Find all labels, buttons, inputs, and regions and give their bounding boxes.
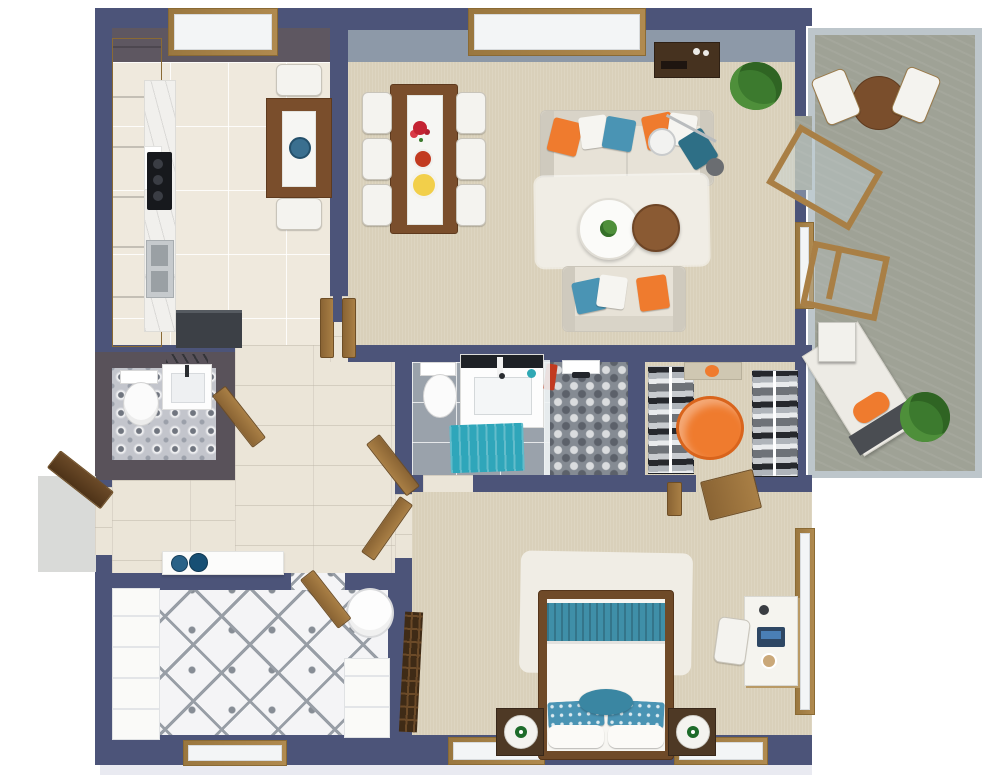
closet-door-jamb	[667, 482, 682, 516]
pillow-white-3	[596, 274, 628, 310]
cooktop	[147, 152, 172, 210]
blue-bowl-2	[189, 553, 208, 572]
media-console	[654, 42, 720, 78]
bed-frame	[538, 590, 674, 760]
yellow-plate	[410, 171, 438, 199]
double-door-right	[342, 298, 356, 358]
pillow-orange-3	[636, 274, 670, 312]
mirror-ottoman-reflection	[705, 365, 719, 377]
shower-floor	[550, 362, 628, 475]
laundry-storage-unit	[344, 658, 390, 738]
living-window	[468, 8, 646, 56]
teal-bed-runner	[547, 603, 665, 641]
dining-chair-r2	[456, 138, 486, 180]
teal-soap-dish	[527, 369, 536, 378]
desk-lamp	[759, 605, 769, 615]
table-plant	[600, 220, 617, 237]
desk-chair	[713, 616, 751, 666]
bed-pillow-white-right	[608, 725, 664, 748]
teal-bath-mat	[449, 423, 525, 474]
dining-chair-r3	[456, 184, 486, 226]
fruit-bowl	[413, 149, 433, 169]
laundry-cabinets-left	[112, 588, 160, 740]
nightstand-right	[668, 708, 716, 756]
nightstand-left	[496, 708, 544, 756]
kitchen-sink	[146, 240, 174, 298]
desk	[744, 596, 798, 686]
laundry-window	[183, 740, 287, 766]
dining-chair-l3	[362, 184, 392, 226]
wc-toilet-bowl	[123, 382, 159, 426]
kitchen-window	[168, 8, 278, 56]
dining-chair-l2	[362, 138, 392, 180]
closet-mirror	[684, 362, 742, 380]
dining-chair-l1	[362, 92, 392, 134]
blue-bowl-1	[171, 555, 188, 572]
wc-mirror-reflection	[166, 354, 208, 363]
double-door-left	[320, 298, 334, 358]
double-door-mullion	[333, 294, 342, 322]
coffee-table	[578, 198, 640, 260]
desk-mug	[761, 653, 777, 669]
burner	[153, 191, 163, 201]
wc-vanity	[162, 364, 212, 410]
dining-chair-r1	[456, 92, 486, 134]
kitchen-chair-bottom	[276, 198, 322, 230]
burner	[153, 175, 163, 185]
balcony-plant	[900, 392, 950, 442]
flower-vase	[413, 121, 427, 135]
hall-console-table	[162, 551, 284, 575]
pillow-blue-1	[601, 116, 636, 153]
wall-kitchen-dining	[330, 8, 348, 296]
shower-glass-partition	[544, 360, 550, 475]
bath-toilet-bowl	[423, 374, 457, 418]
bed-teal-accent-pillow	[579, 689, 633, 715]
shower-head	[572, 372, 590, 378]
blue-plant-pot	[289, 137, 311, 159]
globe-lamp-left	[504, 715, 538, 749]
kitchen-chair-top	[276, 64, 322, 96]
bedroom-side-window	[795, 528, 815, 715]
laundry-hamper	[346, 588, 394, 638]
laptop	[757, 627, 785, 647]
side-table-round	[632, 204, 680, 252]
balcony-side-table	[818, 322, 856, 362]
closet-rack-right	[752, 370, 798, 477]
arc-lamp-base	[706, 158, 724, 176]
globe-lamp-right	[676, 715, 710, 749]
living-plant	[730, 62, 782, 110]
breakfast-table	[266, 98, 332, 198]
bathroom-door-opening	[423, 475, 473, 492]
dining-table	[390, 84, 458, 234]
arc-lamp-shade	[648, 128, 676, 156]
refrigerator	[176, 310, 242, 348]
orange-ottoman	[676, 396, 744, 460]
bath-vanity	[460, 354, 544, 428]
floor-plan-canvas	[0, 0, 1000, 779]
bed-pillow-white-left	[548, 725, 604, 748]
wall-shower-closet	[628, 345, 645, 492]
burner	[153, 159, 163, 169]
